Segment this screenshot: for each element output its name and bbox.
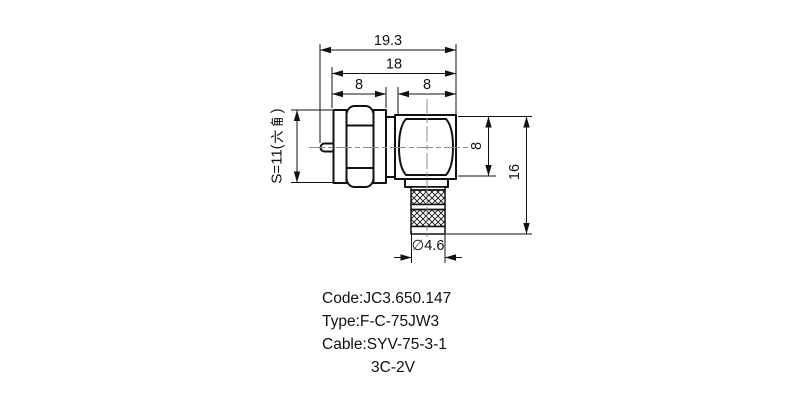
knurl-band-1: [411, 190, 445, 205]
part-cable-line: Cable:SYV-75-3-1: [322, 333, 464, 356]
washer: [374, 110, 387, 183]
coupling-flange: [334, 110, 347, 183]
dim-cable-diameter-value: ∅4.6: [412, 238, 445, 254]
part-code-line: Code:JC3.650.147: [322, 287, 464, 310]
part-type-line: Type:F-C-75JW3: [322, 310, 464, 333]
connector-body: [321, 106, 457, 234]
dim-body-length: 18: [332, 57, 456, 77]
dim-wrench-size-line: [294, 110, 300, 183]
dim-total-length-value: 19.3: [374, 33, 402, 49]
dim-head-width-value: 8: [423, 77, 431, 93]
dim-total-length: 19.3: [320, 33, 456, 53]
dim-total-height: 16: [507, 117, 530, 235]
part-info-block: Code:JC3.650.147 Type:F-C-75JW3 Cable:SY…: [322, 287, 464, 379]
dim-hex-section: 8: [332, 77, 386, 97]
dim-body-length-value: 18: [386, 57, 402, 73]
dim-total-height-value: 16: [507, 164, 523, 180]
technical-drawing-canvas: 19.3 18 8 8 8: [0, 0, 800, 400]
wrench-size-prefix: S=11(: [269, 144, 286, 183]
part-cable-type-line: 3C-2V: [322, 356, 464, 379]
knurl-band-2: [411, 210, 445, 227]
dim-head-height: 8: [469, 117, 492, 177]
wrench-size-label: S=11( ): [269, 108, 286, 183]
hex-nut: [347, 106, 374, 187]
wrench-size-suffix: ): [269, 108, 286, 113]
hanzi-liu-icon: [270, 129, 284, 143]
dim-head-height-value: 8: [469, 142, 485, 150]
crimp-end: [411, 227, 445, 235]
hanzi-jiao-icon: [270, 114, 284, 128]
dim-head-width: 8: [398, 77, 456, 97]
dim-hex-section-value: 8: [355, 77, 363, 93]
dim-cable-diameter: ∅4.6: [394, 238, 462, 261]
